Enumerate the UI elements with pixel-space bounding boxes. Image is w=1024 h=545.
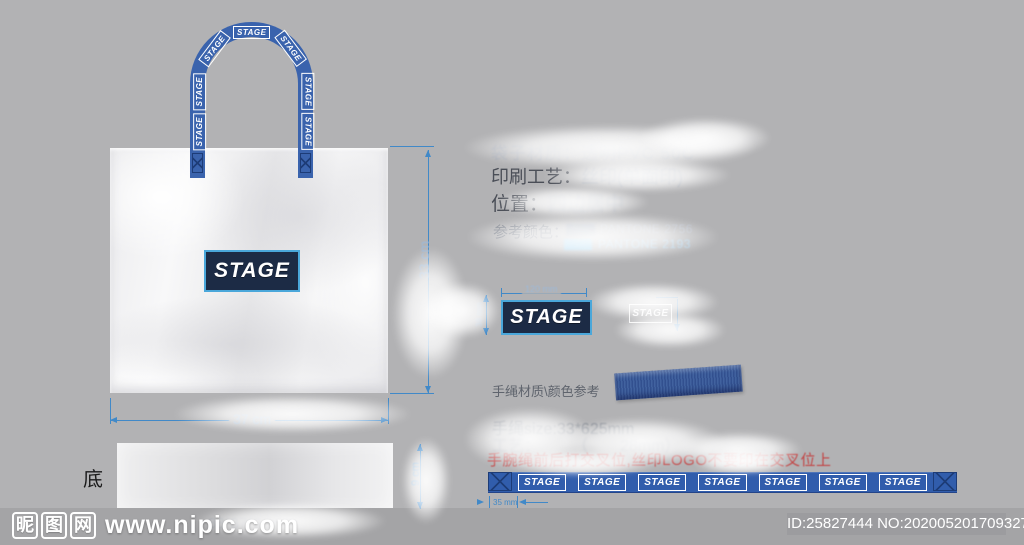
dim-arrow-right <box>381 417 388 423</box>
dim-logo-height-arrow-up <box>483 295 489 302</box>
stitch-box-right <box>300 153 311 173</box>
site-char-2: 图 <box>41 512 67 539</box>
ribbon-logo-1: STAGE <box>518 474 566 491</box>
ribbon-logo-5: STAGE <box>759 474 807 491</box>
logo-detail-outline: STAGE <box>629 304 672 323</box>
dim-ext-right <box>388 398 389 424</box>
handle-material-label: 手绳材质\颜色参考 <box>492 381 600 400</box>
watermark-site-url: www.nipic.com <box>105 511 299 540</box>
dim-bottom-height-arrow-up <box>417 444 423 451</box>
ribbon-logo-3: STAGE <box>638 474 686 491</box>
bottom-panel <box>117 443 393 510</box>
spec-printing-label: 印刷工艺： <box>491 167 581 187</box>
site-char-1: 昵 <box>12 512 38 539</box>
watermark-site-name: 昵 图 网 www.nipic.com <box>12 511 299 540</box>
handle-fabric-swatch <box>614 365 743 401</box>
spec-position-label: 位置： <box>491 194 548 215</box>
handle-logo-right-2: STAGE <box>301 113 314 150</box>
ribbon-logo-row: STAGE STAGE STAGE STAGE STAGE STAGE STAG… <box>518 472 927 493</box>
dim-logo-width-label: 120 mm <box>522 284 561 294</box>
dim-outline-logo-arrow <box>674 324 680 331</box>
image-id-badge: ID:25827444 NO:20200520170932707422 <box>787 513 1006 535</box>
dim-logo-width-tick-l <box>501 288 502 297</box>
ribbon-logo-6: STAGE <box>819 474 867 491</box>
pantone-label-1: PANTONE 2756 <box>600 222 693 236</box>
spec-printing-line: 印刷工艺：丝印(单面印) <box>491 163 683 189</box>
stitch-box-left <box>192 153 203 173</box>
spec-position-line: 位置：四边居中 <box>491 189 624 216</box>
bag-handle-arch <box>190 22 313 148</box>
handle-logo-right-1: STAGE <box>301 73 314 110</box>
dim-logo-width-tick-r <box>586 288 587 297</box>
dim-ribbon-offset-label: 35 mm <box>493 498 517 507</box>
logo-detail-print: STAGE <box>501 300 592 335</box>
handle-logo-top: STAGE <box>233 26 270 39</box>
pantone-label-2: PANTONE 2193 <box>598 237 691 251</box>
ribbon-stitch-right <box>933 472 957 491</box>
blur-smudge <box>175 395 410 433</box>
ribbon-strip: STAGE STAGE STAGE STAGE STAGE STAGE STAG… <box>488 472 957 493</box>
spec-position-value: 四边居中 <box>548 194 624 215</box>
ribbon-stitch-left <box>488 472 512 491</box>
dim-ribbon-offset-tick-r <box>517 496 518 508</box>
spec-material-label: 袋子材质： <box>491 144 581 163</box>
dim-ribbon-offset-tick-l <box>489 496 490 508</box>
spec-material-line: 袋子材质：透明PVC 50C <box>491 139 695 164</box>
dim-arrow-down <box>425 386 431 393</box>
dim-ribbon-offset-tail <box>526 502 548 503</box>
dim-logo-height-label: 38 mm <box>475 302 484 326</box>
spec-material-value: 透明PVC 50C <box>581 144 695 163</box>
handle-warning-line: 手腕绳前后打交叉位,丝印LOGO不要印在交叉位上 <box>487 449 832 470</box>
dim-logo-height-arrow-down <box>483 328 489 335</box>
site-char-3: 网 <box>70 512 96 539</box>
handle-logo-left-2: STAGE <box>193 113 206 150</box>
dim-arrow-left <box>110 417 117 423</box>
dim-ext-bottom <box>390 393 434 394</box>
bag-front-logo: STAGE <box>204 250 300 292</box>
dim-ribbon-offset-arrow-r <box>477 499 484 505</box>
dim-bottom-height-arrow-down <box>417 502 423 509</box>
dim-bag-height-label: 33 cm <box>416 241 432 279</box>
dim-arrow-up <box>425 150 431 157</box>
handle-logo-left-1: STAGE <box>193 73 206 110</box>
ribbon-logo-2: STAGE <box>578 474 626 491</box>
dim-outline-logo-tick <box>656 297 678 298</box>
page-canvas: STAGE STAGE STAGE STAGE STAGE STAGE STAG… <box>0 0 1024 545</box>
bottom-panel-label: 底 <box>83 463 103 492</box>
dim-ribbon-offset-arrow-l <box>519 499 526 505</box>
dim-ext-top <box>390 146 434 147</box>
ribbon-logo-7: STAGE <box>879 474 927 491</box>
pantone-swatch-1 <box>566 224 595 236</box>
dim-bag-width-label: 37 cm <box>229 411 275 427</box>
pantone-swatch-2 <box>564 239 592 250</box>
dim-bottom-height-label: 9 cm <box>410 462 422 486</box>
spec-printing-value: 丝印(单面印) <box>581 167 683 187</box>
ribbon-logo-4: STAGE <box>698 474 746 491</box>
color-reference-label: 参考颜色： <box>493 221 568 242</box>
